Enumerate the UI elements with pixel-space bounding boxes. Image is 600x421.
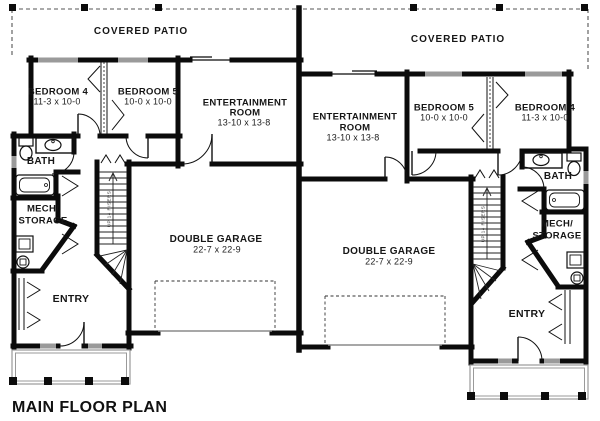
plan-title: MAIN FLOOR PLAN — [12, 399, 167, 417]
stair-direction-label-left: UP 14 RISERS — [107, 191, 112, 227]
bedroom5-label-right: BEDROOM 5 — [414, 103, 474, 113]
garage-label-left: DOUBLE GARAGE — [170, 235, 263, 245]
entertainment-dims-left: 13-10 x 13-8 — [218, 119, 271, 128]
bedroom4-dims-right: 11-3 x 10-0 — [521, 114, 568, 123]
garage-dims-right: 22-7 x 22-9 — [365, 258, 413, 267]
bathtub-icon — [546, 190, 584, 210]
stair-direction-label-right: UP 14 RISERS — [481, 206, 486, 242]
entertainment-label2-right: ROOM — [340, 123, 371, 133]
bedroom5-dims-right: 10-0 x 10-0 — [420, 114, 468, 123]
entry-label-right: ENTRY — [509, 309, 546, 320]
bedroom4-label-left: BEDROOM 4 — [28, 87, 88, 97]
garage-dims-left: 22-7 x 22-9 — [193, 246, 241, 255]
washer-icon — [567, 252, 584, 268]
staircase-right — [473, 187, 501, 299]
bedroom5-label-left: BEDROOM 5 — [118, 87, 178, 97]
mech-label-right: MECH/ — [541, 219, 573, 229]
entertainment-dims-right: 13-10 x 13-8 — [327, 134, 380, 143]
bath-label-left: BATH — [27, 157, 55, 167]
left-unit — [9, 4, 301, 385]
storage-label-left: STORAGE — [19, 216, 68, 226]
garage-apron-dashed-left — [155, 281, 275, 331]
water-heater-icon — [17, 256, 29, 268]
garage-label-right: DOUBLE GARAGE — [343, 247, 436, 257]
washer-icon — [16, 236, 33, 252]
sink-icon — [524, 153, 562, 168]
entry-label-left: ENTRY — [53, 294, 90, 305]
garage-apron-dashed-right — [325, 296, 445, 345]
right-unit — [299, 4, 588, 400]
bedroom4-dims-left: 11-3 x 10-0 — [33, 98, 80, 107]
water-heater-icon — [571, 272, 583, 284]
covered-patio-label-right: COVERED PATIO — [411, 35, 505, 45]
floor-plan-canvas: COVERED PATIO COVERED PATIO BEDROOM 4 11… — [0, 0, 600, 421]
covered-patio-label-left: COVERED PATIO — [94, 27, 188, 37]
entertainment-label2-left: ROOM — [230, 108, 261, 118]
patio-posts-right — [410, 4, 588, 11]
staircase-left — [99, 172, 127, 284]
mech-label-left: MECH/ — [27, 204, 59, 214]
bath-label-right: BATH — [544, 172, 572, 182]
storage-label-right: STORAGE — [533, 231, 582, 241]
bedroom5-dims-left: 10-0 x 10-0 — [124, 98, 172, 107]
bedroom4-label-right: BEDROOM 4 — [515, 103, 575, 113]
entertainment-label-right: ENTERTAINMENT — [313, 112, 397, 122]
porch-left — [9, 350, 130, 385]
bathtub-icon — [16, 175, 54, 195]
porch-right — [467, 365, 588, 400]
sink-icon — [36, 138, 74, 153]
floor-plan-drawing — [0, 0, 600, 421]
patio-door-left — [190, 57, 232, 60]
patio-door-right — [330, 71, 377, 74]
patio-posts-left — [9, 4, 162, 11]
